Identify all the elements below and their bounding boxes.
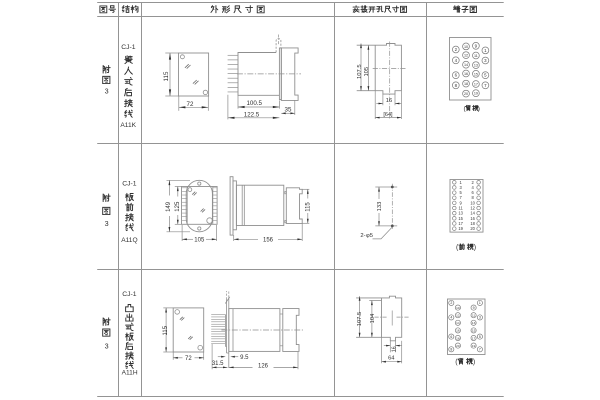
- svg-text:14: 14: [464, 63, 468, 67]
- svg-text:64: 64: [388, 355, 395, 361]
- svg-text:CJ-1: CJ-1: [122, 181, 137, 188]
- svg-text:13: 13: [472, 321, 476, 325]
- svg-text:A11H: A11H: [122, 370, 138, 377]
- svg-text:19: 19: [472, 344, 476, 348]
- svg-text:13: 13: [474, 64, 478, 68]
- svg-text:156: 156: [263, 237, 274, 243]
- svg-text:): ): [478, 106, 480, 113]
- svg-text:5: 5: [479, 335, 481, 339]
- svg-text:9: 9: [473, 306, 475, 310]
- svg-text:133: 133: [377, 202, 383, 212]
- svg-text:11: 11: [472, 314, 475, 318]
- svg-text:CJ-1: CJ-1: [121, 44, 136, 51]
- svg-text:2: 2: [450, 301, 452, 305]
- svg-text:72: 72: [185, 356, 192, 362]
- svg-text:1: 1: [479, 301, 481, 305]
- svg-text:115: 115: [305, 202, 311, 212]
- svg-text:105: 105: [364, 67, 370, 77]
- svg-text:11: 11: [474, 54, 478, 58]
- svg-text:2-: 2-: [360, 233, 365, 239]
- svg-text:115: 115: [163, 325, 169, 335]
- svg-text:17: 17: [472, 336, 476, 340]
- svg-text:15: 15: [474, 72, 478, 76]
- svg-text:10: 10: [456, 306, 460, 310]
- svg-text:19: 19: [474, 92, 478, 96]
- svg-text:16: 16: [386, 98, 392, 104]
- svg-text:105: 105: [194, 237, 205, 243]
- svg-text:16: 16: [391, 346, 397, 352]
- svg-text:): ): [474, 244, 476, 251]
- svg-text:107.5: 107.5: [357, 312, 363, 327]
- svg-text:3: 3: [105, 341, 109, 350]
- svg-text:15: 15: [472, 329, 476, 333]
- svg-text:φ5: φ5: [366, 233, 373, 239]
- svg-text:[64]: [64]: [383, 112, 393, 118]
- svg-text:31.5: 31.5: [212, 361, 224, 367]
- svg-text:A11Q: A11Q: [121, 237, 137, 244]
- svg-text:20: 20: [456, 344, 460, 348]
- svg-text:18: 18: [456, 336, 460, 340]
- svg-text:35: 35: [285, 106, 292, 113]
- svg-text:16: 16: [464, 72, 468, 76]
- svg-text:3: 3: [105, 87, 109, 96]
- svg-text:A11K: A11K: [120, 122, 136, 129]
- svg-text:100.5: 100.5: [246, 100, 262, 107]
- svg-text:72: 72: [187, 101, 194, 108]
- svg-text:20: 20: [470, 226, 475, 231]
- svg-text:3: 3: [479, 316, 481, 320]
- svg-text:122.5: 122.5: [244, 111, 260, 118]
- svg-text:3: 3: [105, 219, 109, 228]
- svg-text:20: 20: [464, 92, 468, 96]
- svg-text:9.5: 9.5: [240, 355, 249, 361]
- svg-text:14: 14: [456, 321, 460, 325]
- svg-text:10: 10: [464, 45, 468, 49]
- svg-text:107.5: 107.5: [357, 64, 363, 79]
- svg-text:104: 104: [370, 313, 376, 323]
- svg-text:8: 8: [450, 348, 452, 352]
- svg-text:16: 16: [456, 329, 460, 333]
- svg-text:): ): [473, 359, 475, 366]
- svg-text:19: 19: [458, 226, 463, 231]
- svg-text:115: 115: [163, 71, 170, 81]
- svg-text:CJ-1: CJ-1: [122, 291, 137, 298]
- svg-text:17: 17: [474, 83, 478, 87]
- svg-text:4: 4: [450, 316, 452, 320]
- svg-text:125: 125: [175, 201, 181, 212]
- svg-text:6: 6: [450, 335, 452, 339]
- svg-text:12: 12: [464, 54, 468, 58]
- svg-text:126: 126: [258, 364, 269, 370]
- svg-text:149: 149: [166, 201, 172, 212]
- svg-text:12: 12: [456, 314, 460, 318]
- svg-text:7: 7: [479, 348, 481, 352]
- svg-text:18: 18: [464, 82, 468, 86]
